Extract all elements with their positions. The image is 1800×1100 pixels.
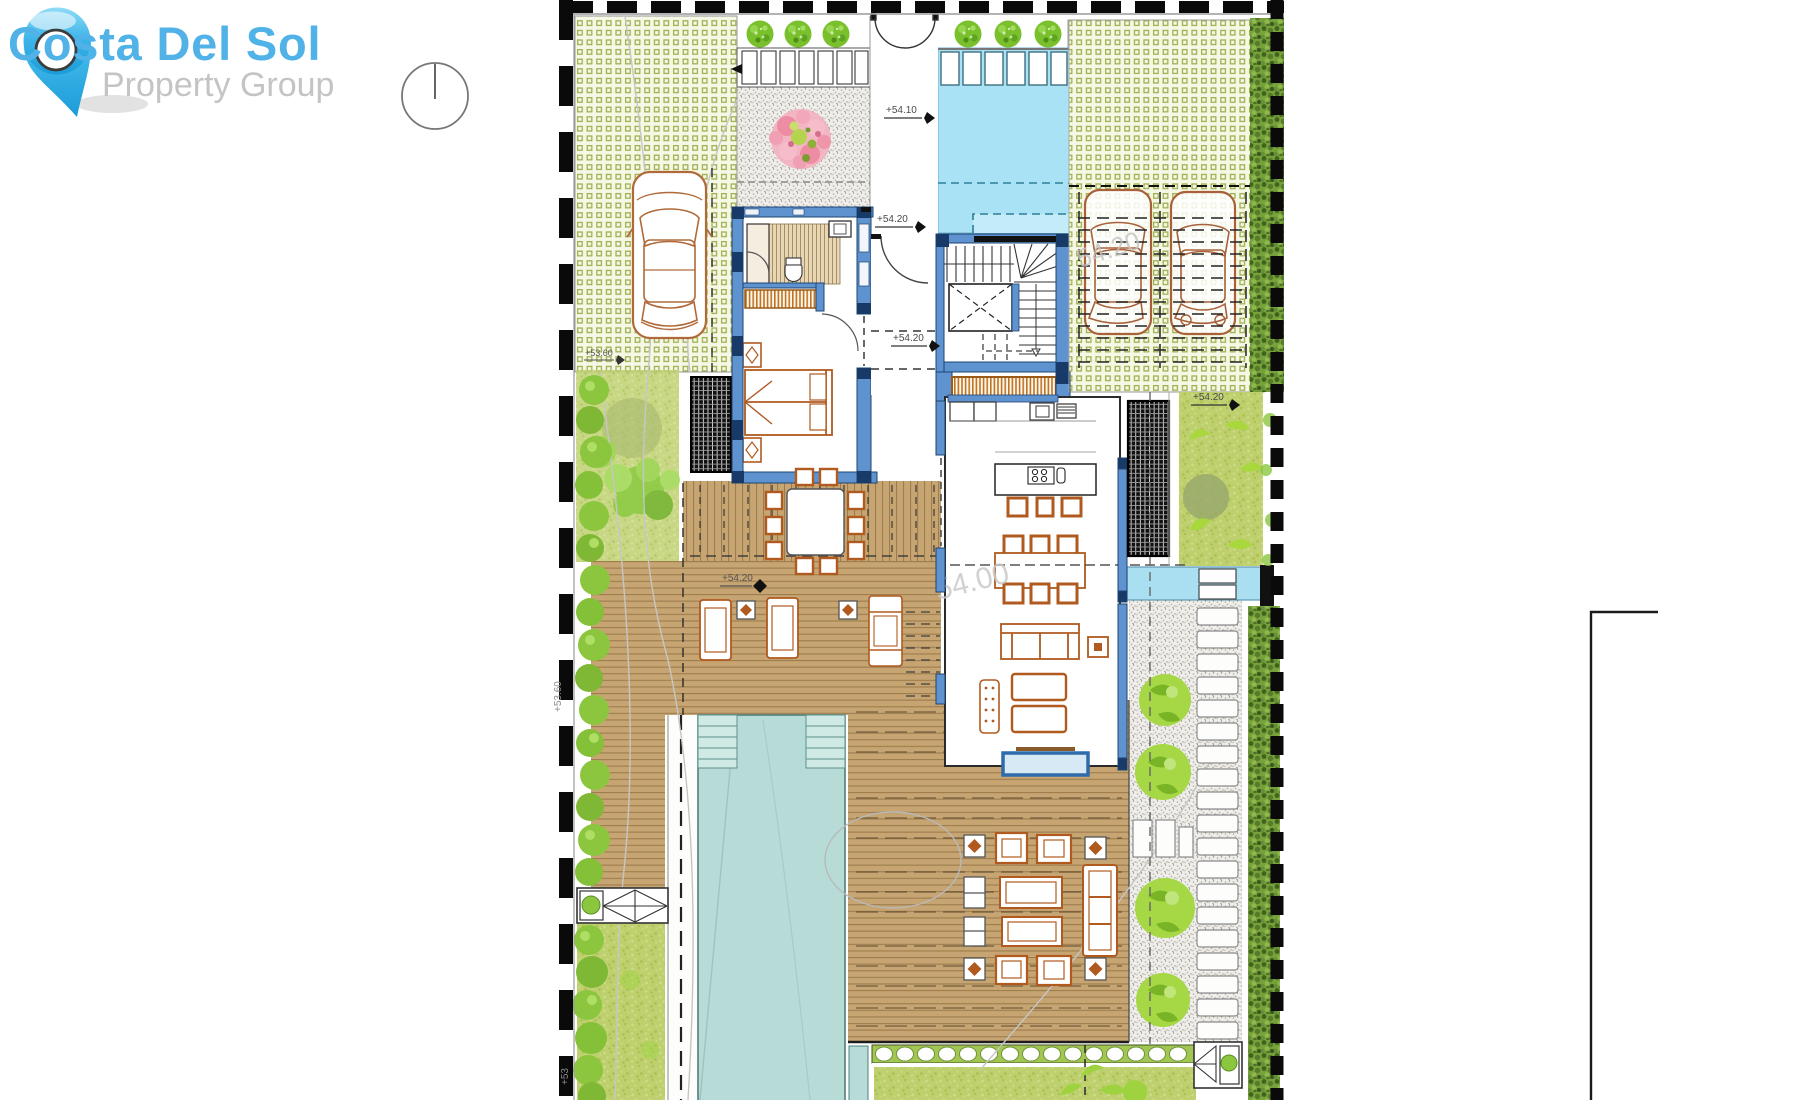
svg-text:Property Group: Property Group — [102, 66, 334, 104]
svg-text:+54.20: +54.20 — [722, 573, 753, 584]
svg-text:Costa Del Sol: Costa Del Sol — [8, 17, 321, 70]
svg-text:+54.10: +54.10 — [886, 105, 917, 116]
svg-text:+53: +53 — [560, 1068, 571, 1085]
svg-text:+54.20: +54.20 — [877, 214, 908, 225]
svg-text:+54.20: +54.20 — [1193, 392, 1224, 403]
svg-text:+53.60: +53.60 — [585, 348, 613, 358]
svg-text:+54.20: +54.20 — [893, 333, 924, 344]
svg-text:+53.60: +53.60 — [553, 681, 564, 712]
